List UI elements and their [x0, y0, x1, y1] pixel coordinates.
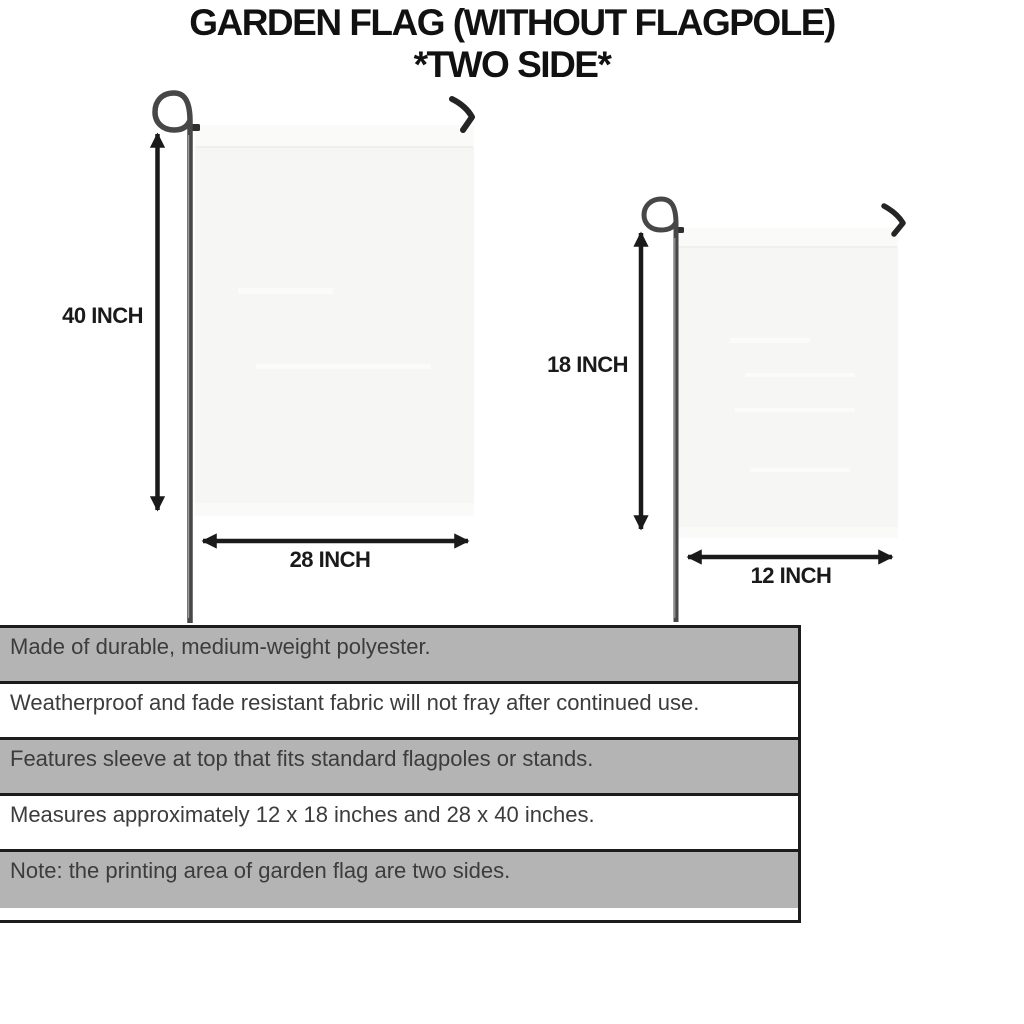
- large-flag-sleeve: [195, 125, 474, 147]
- fabric-crease: [735, 408, 855, 412]
- small-flag-width-label: 12 INCH: [691, 563, 891, 589]
- large-flag-fabric: [195, 125, 474, 516]
- spec-row: Note: the printing area of garden flag a…: [0, 852, 798, 908]
- fabric-crease: [750, 468, 850, 472]
- small-flag-height-label: 18 INCH: [480, 352, 628, 378]
- spec-row: Features sleeve at top that fits standar…: [0, 740, 798, 796]
- small-flag-sleeve: [678, 228, 898, 247]
- small-flag-group: [641, 199, 903, 622]
- small-flag-fabric: [678, 228, 898, 538]
- fabric-crease: [730, 338, 810, 343]
- large-flag-height-label: 40 INCH: [0, 303, 143, 329]
- spec-text: Weatherproof and fade resistant fabric w…: [10, 690, 699, 715]
- fabric-crease: [256, 364, 431, 369]
- small-flag-hanger-loop-icon: [644, 199, 676, 230]
- fabric-crease: [745, 373, 855, 377]
- spec-row: Weatherproof and fade resistant fabric w…: [0, 684, 798, 740]
- spec-row: Made of durable, medium-weight polyester…: [0, 628, 798, 684]
- large-flag-bottom-hem: [195, 503, 474, 516]
- spec-text: Measures approximately 12 x 18 inches an…: [10, 802, 595, 827]
- large-flag-group: [155, 93, 474, 623]
- large-flag-hanger-loop-icon: [155, 93, 190, 130]
- fabric-crease: [238, 288, 333, 294]
- spec-row: Measures approximately 12 x 18 inches an…: [0, 796, 798, 852]
- spec-text: Made of durable, medium-weight polyester…: [10, 634, 431, 659]
- small-flag-bottom-hem: [678, 527, 898, 538]
- spec-text: Note: the printing area of garden flag a…: [10, 858, 510, 883]
- garden-flag-infographic: GARDEN FLAG (WITHOUT FLAGPOLE) *TWO SIDE…: [0, 0, 1024, 1024]
- spec-table: Made of durable, medium-weight polyester…: [0, 625, 801, 923]
- large-flag-width-label: 28 INCH: [230, 547, 430, 573]
- spec-text: Features sleeve at top that fits standar…: [10, 746, 593, 771]
